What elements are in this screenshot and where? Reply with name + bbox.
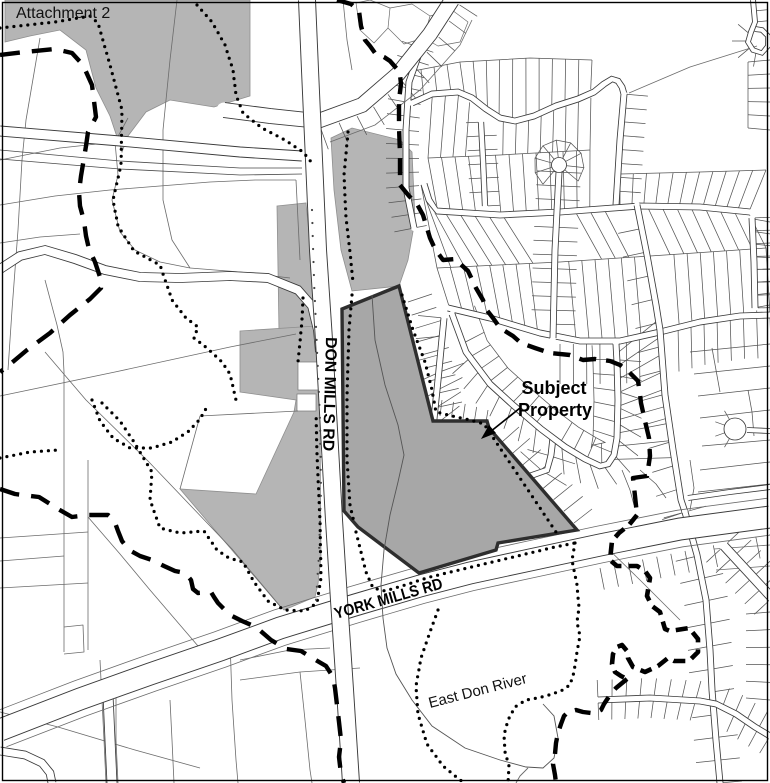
svg-text:Property: Property xyxy=(518,400,592,420)
svg-text:Attachment 2: Attachment 2 xyxy=(16,5,110,22)
svg-text:DON MILLS RD: DON MILLS RD xyxy=(319,337,339,451)
svg-text:Subject: Subject xyxy=(521,378,586,398)
